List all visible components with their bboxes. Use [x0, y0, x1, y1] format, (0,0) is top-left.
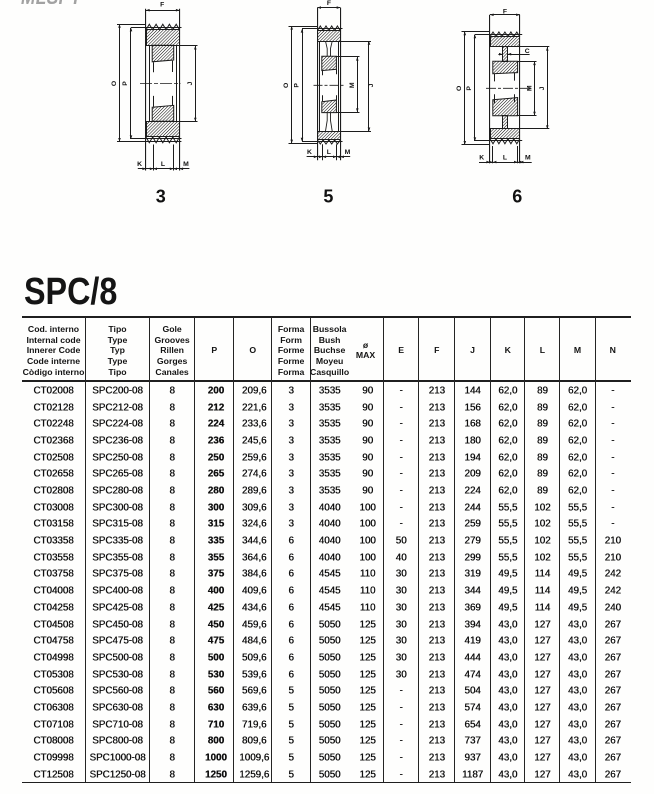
svg-text:M: M	[525, 155, 531, 162]
svg-text:L: L	[503, 155, 507, 162]
svg-text:J: J	[187, 81, 194, 85]
svg-text:5: 5	[323, 187, 333, 207]
svg-text:M: M	[183, 161, 189, 168]
svg-text:J: J	[368, 83, 375, 87]
svg-text:6: 6	[512, 187, 522, 207]
svg-text:P: P	[293, 83, 300, 88]
svg-text:K: K	[137, 161, 142, 168]
svg-text:M: M	[349, 82, 356, 88]
svg-text:F: F	[503, 8, 507, 15]
svg-text:K: K	[307, 149, 312, 156]
svg-text:F: F	[160, 2, 164, 9]
svg-text:M: M	[526, 85, 533, 91]
svg-text:L: L	[161, 161, 165, 168]
svg-text:M: M	[345, 149, 351, 156]
svg-text:J: J	[539, 86, 546, 90]
svg-text:O: O	[456, 86, 463, 91]
svg-text:L: L	[327, 149, 331, 156]
svg-text:K: K	[479, 155, 484, 162]
svg-text:P: P	[466, 86, 473, 91]
svg-text:O: O	[111, 81, 118, 86]
svg-text:P: P	[122, 81, 129, 86]
svg-text:3: 3	[156, 187, 166, 207]
svg-text:O: O	[283, 83, 290, 88]
svg-text:C: C	[525, 48, 530, 55]
svg-text:F: F	[327, 0, 331, 7]
